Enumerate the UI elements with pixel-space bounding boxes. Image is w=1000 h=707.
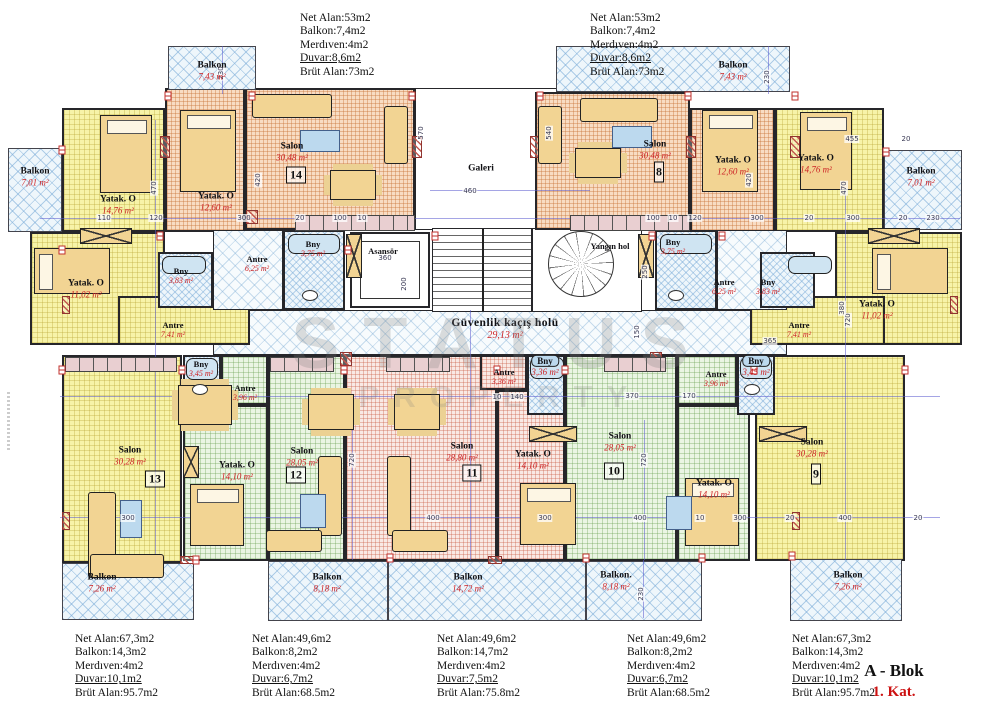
furniture-tub-icon (788, 256, 832, 274)
room-name: Yatak. O (715, 156, 751, 167)
room-area: 30,48 m² (639, 150, 671, 160)
room-name: Balkon (906, 167, 935, 178)
room-area: 7,43 m² (718, 71, 747, 81)
room-label-bny: Bny3,83 m² (756, 278, 780, 296)
furniture-table-icon (394, 394, 440, 430)
zone-grn (565, 355, 677, 561)
room-name: Balkon. (600, 571, 631, 582)
dimension-label: 300 (537, 514, 552, 522)
room-area: 6,25 m² (245, 264, 269, 273)
room-label-salon: Salon30,48 m² (639, 140, 671, 161)
summary-line: Net Alan:49,6m2 (627, 633, 710, 646)
summary-line: Merdıven:4m2 (437, 660, 520, 673)
room-label-antre: Antre3,36 m² (492, 368, 516, 386)
apartment-number: 12 (286, 467, 306, 484)
room-label-yatak-o: Yatak. O14,10 m² (219, 461, 255, 482)
room-name: Balkon (452, 573, 484, 584)
room-label-yatak-o: Yatak. O12,60 m² (715, 156, 751, 177)
furniture-bed-icon (190, 484, 244, 546)
room-name: Balkon (833, 571, 862, 582)
dimension-label: 230 (637, 586, 645, 601)
room-label-yatak-o: Yatak. O11,02 m² (859, 300, 895, 321)
dimension-line (430, 190, 590, 191)
room-name: Salon (639, 140, 671, 151)
window-marker-icon (409, 92, 416, 101)
summary-line: Balkon:8,2m2 (252, 646, 335, 659)
window-marker-icon (583, 554, 590, 563)
room-area: 3,36 m² (531, 367, 559, 377)
room-label-salon: Salon28,80 m² (446, 442, 478, 463)
room-area: 7,26 m² (833, 581, 862, 591)
dimension-label: 20 (295, 214, 306, 222)
dimension-label: 10 (357, 214, 368, 222)
room-name: Yatak. O (515, 450, 551, 461)
summary-line: Merdıven:4m2 (792, 660, 875, 673)
room-area: 30,48 m² (276, 152, 308, 162)
furniture-bedh-icon (872, 248, 948, 294)
summary-line: Balkon:14,3m2 (75, 646, 158, 659)
dimension-label: 10 (492, 393, 503, 401)
room-name: Balkon (718, 61, 747, 72)
furniture-wc-icon (744, 384, 760, 395)
wall-column (160, 136, 170, 158)
room-label-yatak-o: Yatak. O14,10 m² (696, 479, 732, 500)
room-area: 12,60 m² (198, 202, 234, 212)
furniture-wc-icon (302, 290, 318, 301)
room-area: 14,10 m² (515, 460, 551, 470)
summary-line: Balkon:7,4m2 (300, 25, 374, 38)
window-marker-icon (562, 366, 569, 375)
furniture-ward-icon (868, 228, 920, 244)
room-area: 30,28 m² (114, 456, 146, 466)
room-label-bny: Bny3,45 m² (189, 360, 213, 378)
room-name: Yangın hol (588, 242, 632, 252)
room-name: Salon (796, 438, 828, 449)
summary-line: Net Alan:67,3m2 (75, 633, 158, 646)
room-label-yatak-o: Yatak. O11,02 m² (68, 279, 104, 300)
room-name: Yatak. O (798, 154, 834, 165)
wall-column (686, 136, 696, 158)
summary-line: Net Alan:53m2 (590, 12, 664, 25)
summary-line: Duvar:6,7m2 (252, 673, 335, 686)
dimension-label: 455 (844, 135, 859, 143)
room-label-bny: Bny3,45 m² (742, 355, 770, 377)
furniture-ward-icon (183, 446, 199, 478)
room-name: Salon (276, 142, 308, 153)
room-area: 28,80 m² (446, 452, 478, 462)
room-name: Salon (446, 442, 478, 453)
furniture-sofah-icon (580, 98, 658, 122)
room-label-antre: Antre7,41 m² (161, 321, 185, 339)
room-name: Bny (742, 355, 770, 367)
dimension-label: 100 (645, 214, 660, 222)
furniture-ward-icon (80, 228, 132, 244)
window-marker-icon (537, 92, 544, 101)
furniture-rug-icon (666, 496, 692, 530)
dimension-label: 230 (925, 214, 940, 222)
dimension-label: 170 (681, 392, 696, 400)
floorplan-sheet: STATUS PROPERTY A - Blok 1. Kat. 4603602… (0, 0, 1000, 707)
dimension-label: 300 (845, 214, 860, 222)
furniture-kit-icon (270, 357, 334, 372)
furniture-ward-icon (529, 426, 577, 442)
wall-column (340, 352, 352, 366)
zone-stairs (432, 228, 532, 312)
dimension-label: 120 (687, 214, 702, 222)
window-marker-icon (685, 92, 692, 101)
furniture-table-icon (330, 170, 376, 200)
apartment-number: 11 (462, 465, 481, 482)
room-area: 3,83 m² (756, 287, 780, 296)
dimension-label: 470 (150, 180, 158, 195)
furniture-wc-icon (668, 290, 684, 301)
summary-line: Merdıven:4m2 (252, 660, 335, 673)
dimension-label: 540 (545, 125, 553, 140)
room-area: 3,45 m² (742, 367, 770, 377)
dimension-label: 365 (762, 337, 777, 345)
summary-line: Balkon:7,4m2 (590, 25, 664, 38)
room-label-bny: Bny3,75 m² (661, 238, 685, 256)
dimension-label: 300 (120, 514, 135, 522)
room-name: Yatak. O (219, 461, 255, 472)
room-label-antre: Antre3,96 m² (704, 370, 728, 388)
room-area: 3,45 m² (189, 369, 213, 378)
dimension-label: 370 (624, 392, 639, 400)
summary-line: Duvar:10,1m2 (75, 673, 158, 686)
window-marker-icon (387, 554, 394, 563)
window-marker-icon (789, 552, 796, 561)
dimension-label: 400 (425, 514, 440, 522)
room-area: 7,26 m² (87, 583, 116, 593)
apartment-number: 14 (286, 167, 306, 184)
room-name: Yatak. O (100, 195, 136, 206)
room-label-antre: Antre3,96 m² (233, 384, 257, 402)
window-marker-icon (193, 556, 200, 565)
room-label-antre: Antre7,41 m² (787, 321, 811, 339)
room-label-g-venlik-ka-hol: Güvenlik kaçış holü29,13 m² (451, 317, 558, 341)
room-label-balkon: Balkon8,18 m² (312, 573, 341, 594)
summary-line: Net Alan:49,6m2 (437, 633, 520, 646)
area-summary: Net Alan:49,6m2Balkon:8,2m2Merdıven:4m2D… (252, 633, 335, 700)
room-area: 30,28 m² (796, 448, 828, 458)
summary-line: Merdıven:4m2 (75, 660, 158, 673)
dimension-label: 140 (509, 393, 524, 401)
side-note-strip (7, 392, 10, 450)
window-marker-icon (883, 148, 890, 157)
dimension-label: 300 (732, 514, 747, 522)
room-label-balkon: Balkon.8,18 m² (600, 571, 631, 592)
room-label-bny: Bny3,83 m² (169, 267, 193, 285)
furniture-kit-icon (604, 357, 666, 372)
room-label-salon: Salon30,28 m² (114, 446, 146, 467)
room-name: Balkon (312, 573, 341, 584)
summary-line: Brüt Alan:95.7m2 (75, 687, 158, 700)
window-marker-icon (699, 554, 706, 563)
room-area: 6,25 m² (712, 287, 736, 296)
window-marker-icon (59, 146, 66, 155)
dimension-label: 20 (898, 214, 909, 222)
room-name: Balkon (197, 61, 226, 72)
dimension-label: 10 (668, 214, 679, 222)
summary-line: Duvar:7,5m2 (437, 673, 520, 686)
summary-line: Net Alan:53m2 (300, 12, 374, 25)
room-label-balkon: Balkon7,43 m² (718, 61, 747, 82)
furniture-sofav-icon (384, 106, 408, 164)
room-area: 3,36 m² (492, 377, 516, 386)
furniture-kit-icon (65, 357, 177, 372)
dimension-label: 380 (838, 300, 846, 315)
room-name: Asansör (368, 247, 398, 257)
furniture-sofah-icon (252, 94, 332, 118)
room-area: 3,75 m² (301, 249, 325, 258)
dimension-label: 200 (400, 276, 408, 291)
room-area: 7,41 m² (161, 330, 185, 339)
apartment-number: 10 (604, 463, 624, 480)
room-label-asans-r: Asansör (368, 247, 398, 257)
dimension-label: 20 (913, 514, 924, 522)
area-summary: Net Alan:67,3m2Balkon:14,3m2Merdıven:4m2… (75, 633, 158, 700)
dimension-line (352, 420, 353, 560)
window-marker-icon (902, 366, 909, 375)
zone-elev (350, 232, 430, 308)
summary-line: Balkon:14,3m2 (792, 646, 875, 659)
room-label-bny: Bny3,36 m² (531, 355, 559, 377)
room-name: Yatak. O (68, 279, 104, 290)
room-label-balkon: Balkon14,72 m² (452, 573, 484, 594)
summary-line: Brüt Alan:73m2 (590, 66, 664, 79)
room-label-yatak-o: Yatak. O12,60 m² (198, 192, 234, 213)
room-area: 14,10 m² (696, 489, 732, 499)
dimension-label: 470 (840, 180, 848, 195)
window-marker-icon (59, 246, 66, 255)
window-marker-icon (792, 92, 799, 101)
room-name: Salon (604, 432, 636, 443)
window-marker-icon (719, 232, 726, 241)
furniture-wardv-icon (346, 234, 362, 278)
room-area: 14,76 m² (798, 164, 834, 174)
room-area: 7,01 m² (906, 177, 935, 187)
apartment-number: 9 (811, 464, 821, 485)
window-marker-icon (179, 366, 186, 375)
summary-line: Balkon:8,2m2 (627, 646, 710, 659)
room-name: Balkon (20, 167, 49, 178)
room-area: 14,72 m² (452, 583, 484, 593)
dimension-label: 20 (804, 214, 815, 222)
room-area: 3,96 m² (233, 393, 257, 402)
dimension-label: 250 (641, 264, 649, 279)
room-area: 11,02 m² (68, 289, 104, 299)
room-label-yatak-o: Yatak. O14,76 m² (100, 195, 136, 216)
dimension-label: 460 (462, 187, 477, 195)
dimension-label: 20 (901, 135, 912, 143)
room-area: 7,43 m² (197, 71, 226, 81)
wall-column (62, 512, 70, 530)
room-label-salon: Salon28,05 m² (604, 432, 636, 453)
room-label-salon: Salon28,05 m² (286, 447, 318, 468)
apartment-number: 8 (654, 162, 664, 183)
summary-line: Duvar:8,6m2 (590, 52, 664, 65)
window-marker-icon (165, 92, 172, 101)
room-name: Bny (531, 355, 559, 367)
summary-line: Merdıven:4m2 (627, 660, 710, 673)
furniture-kit-icon (295, 215, 415, 231)
window-marker-icon (59, 366, 66, 375)
window-marker-icon (249, 92, 256, 101)
dimension-label: 150 (633, 324, 641, 339)
summary-line: Duvar:10,1m2 (792, 673, 875, 686)
summary-line: Duvar:6,7m2 (627, 673, 710, 686)
wall-column (488, 556, 502, 564)
room-area: 12,60 m² (715, 166, 751, 176)
furniture-bed-icon (800, 112, 852, 190)
furniture-kit-icon (386, 357, 450, 372)
room-label-yatak-o: Yatak. O14,76 m² (798, 154, 834, 175)
room-area: 8,18 m² (312, 583, 341, 593)
room-name: Balkon (87, 573, 116, 584)
room-label-galeri: Galeri (468, 164, 494, 175)
room-label-balkon: Balkon7,26 m² (833, 571, 862, 592)
room-area: 8,18 m² (600, 581, 631, 591)
furniture-sofah-icon (392, 530, 448, 552)
furniture-table-icon (575, 148, 621, 178)
summary-line: Brüt Alan:75.8m2 (437, 687, 520, 700)
area-summary: Net Alan:53m2Balkon:7,4m2Merdıven:4m2Duv… (300, 12, 374, 79)
window-marker-icon (649, 232, 656, 241)
summary-line: Brüt Alan:73m2 (300, 66, 374, 79)
area-summary: Net Alan:49,6m2Balkon:14,7m2Merdıven:4m2… (437, 633, 520, 700)
summary-line: Net Alan:49,6m2 (252, 633, 335, 646)
room-area: 7,01 m² (20, 177, 49, 187)
room-name: Yatak. O (696, 479, 732, 490)
room-label-antre: Antre6,25 m² (712, 278, 736, 296)
dimension-label: 720 (348, 452, 356, 467)
room-label-antre: Antre6,25 m² (245, 255, 269, 273)
room-name: Yatak. O (198, 192, 234, 203)
dimension-line (644, 420, 645, 560)
furniture-rug-icon (300, 494, 326, 528)
window-marker-icon (157, 232, 164, 241)
room-area: 14,10 m² (219, 471, 255, 481)
room-name: Salon (286, 447, 318, 458)
area-summary: Net Alan:49,6m2Balkon:8,2m2Merdıven:4m2D… (627, 633, 710, 700)
summary-line: Balkon:14,7m2 (437, 646, 520, 659)
room-name: Yatak. O (859, 300, 895, 311)
wall-column (950, 296, 958, 314)
furniture-sofav-icon (387, 456, 411, 536)
room-area: 3,96 m² (704, 379, 728, 388)
room-area: 3,75 m² (661, 247, 685, 256)
furniture-table-icon (308, 394, 354, 430)
room-label-balkon: Balkon7,43 m² (197, 61, 226, 82)
dimension-line (470, 310, 471, 560)
room-area: 29,13 m² (451, 330, 558, 341)
apartment-number: 13 (145, 471, 165, 488)
dimension-line (40, 218, 960, 219)
dimension-label: 10 (695, 514, 706, 522)
dimension-label: 230 (763, 69, 771, 84)
zone-balc (8, 148, 62, 232)
furniture-bed-icon (180, 110, 236, 192)
furniture-wc-icon (192, 384, 208, 395)
room-label-yatak-o: Yatak. O14,10 m² (515, 450, 551, 471)
room-label-salon: Salon30,28 m² (796, 438, 828, 459)
room-label-balkon: Balkon7,01 m² (20, 167, 49, 188)
summary-line: Merdıven:4m2 (300, 39, 374, 52)
room-name: Salon (114, 446, 146, 457)
summary-line: Brüt Alan:68.5m2 (627, 687, 710, 700)
room-label-salon: Salon30,48 m² (276, 142, 308, 163)
window-marker-icon (345, 246, 352, 255)
summary-line: Brüt Alan:68.5m2 (252, 687, 335, 700)
room-label-bny: Bny3,75 m² (301, 240, 325, 258)
room-label-balkon: Balkon7,26 m² (87, 573, 116, 594)
summary-line: Merdıven:4m2 (590, 39, 664, 52)
dimension-label: 400 (632, 514, 647, 522)
room-area: 3,83 m² (169, 276, 193, 285)
dimension-label: 420 (254, 172, 262, 187)
room-name: Galeri (468, 164, 494, 175)
room-area: 28,05 m² (604, 442, 636, 452)
zone-yel (755, 355, 905, 561)
summary-line: Net Alan:67,3m2 (792, 633, 875, 646)
dimension-label: 570 (417, 125, 425, 140)
dimension-label: 720 (640, 452, 648, 467)
dimension-label: 300 (749, 214, 764, 222)
area-summary: Net Alan:53m2Balkon:7,4m2Merdıven:4m2Duv… (590, 12, 664, 79)
window-marker-icon (432, 232, 439, 241)
room-label-balkon: Balkon7,01 m² (906, 167, 935, 188)
summary-line: Brüt Alan:95.7m2 (792, 687, 875, 700)
dimension-label: 20 (785, 514, 796, 522)
furniture-sofah-icon (266, 530, 322, 552)
area-summary: Net Alan:67,3m2Balkon:14,3m2Merdıven:4m2… (792, 633, 875, 700)
summary-line: Duvar:8,6m2 (300, 52, 374, 65)
room-label-yang-n-hol: Yangın hol (588, 242, 632, 252)
zone-balc (388, 561, 586, 621)
dimension-label: 100 (332, 214, 347, 222)
dimension-label: 300 (236, 214, 251, 222)
room-area: 7,41 m² (787, 330, 811, 339)
dimension-label: 120 (148, 214, 163, 222)
room-area: 11,02 m² (859, 310, 895, 320)
room-name: Güvenlik kaçış holü (451, 317, 558, 330)
furniture-bed-icon (100, 115, 152, 193)
room-area: 14,76 m² (100, 205, 136, 215)
dimension-label: 400 (837, 514, 852, 522)
window-marker-icon (341, 366, 348, 375)
